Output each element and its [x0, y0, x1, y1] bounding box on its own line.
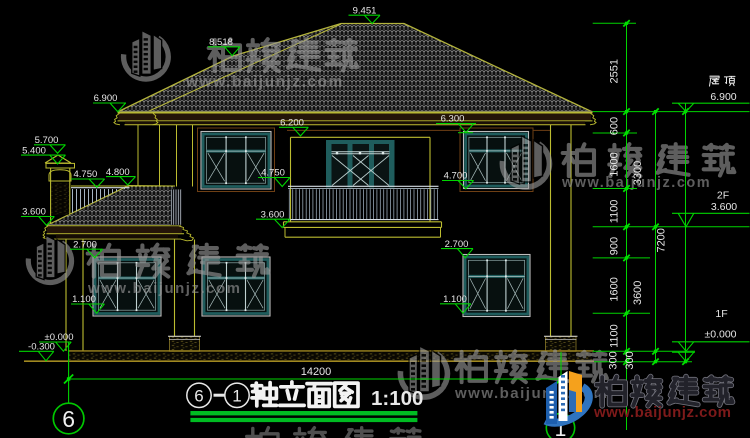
svg-text:1600: 1600: [609, 152, 621, 176]
svg-text:1100: 1100: [609, 200, 621, 224]
svg-text:7200: 7200: [656, 228, 668, 252]
svg-text:1F: 1F: [715, 308, 727, 320]
svg-text:±0.000: ±0.000: [704, 328, 736, 340]
svg-text:www.baijunjz.com: www.baijunjz.com: [593, 404, 731, 421]
svg-text:2F: 2F: [717, 189, 729, 201]
svg-text:3300: 3300: [632, 161, 644, 185]
svg-text:1100: 1100: [609, 324, 621, 348]
svg-text:14200: 14200: [301, 366, 332, 378]
svg-text:2551: 2551: [609, 59, 621, 83]
svg-text:300: 300: [608, 351, 620, 369]
svg-text:6.900: 6.900: [710, 91, 736, 103]
svg-text:1:100: 1:100: [371, 387, 423, 410]
svg-text:www.baijunjz.com: www.baijunjz.com: [87, 280, 241, 297]
svg-text:3600: 3600: [632, 281, 644, 305]
svg-text:600: 600: [609, 117, 621, 135]
svg-text:300: 300: [624, 351, 636, 369]
svg-text:6: 6: [194, 386, 203, 405]
svg-text:1: 1: [232, 386, 241, 405]
svg-text:900: 900: [609, 237, 621, 255]
svg-text:6: 6: [62, 406, 75, 432]
svg-text:3.600: 3.600: [711, 201, 737, 213]
svg-text:1600: 1600: [609, 277, 621, 301]
svg-text:www.baijunjz.com: www.baijunjz.com: [185, 74, 344, 91]
